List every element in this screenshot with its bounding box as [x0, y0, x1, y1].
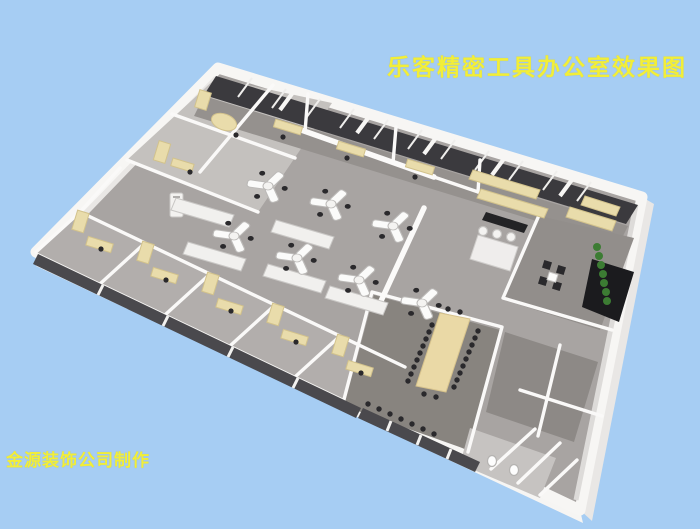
page-title: 乐客精密工具办公室效果图 — [387, 48, 687, 82]
credit-text: 金源装饰公司制作 — [6, 446, 150, 471]
